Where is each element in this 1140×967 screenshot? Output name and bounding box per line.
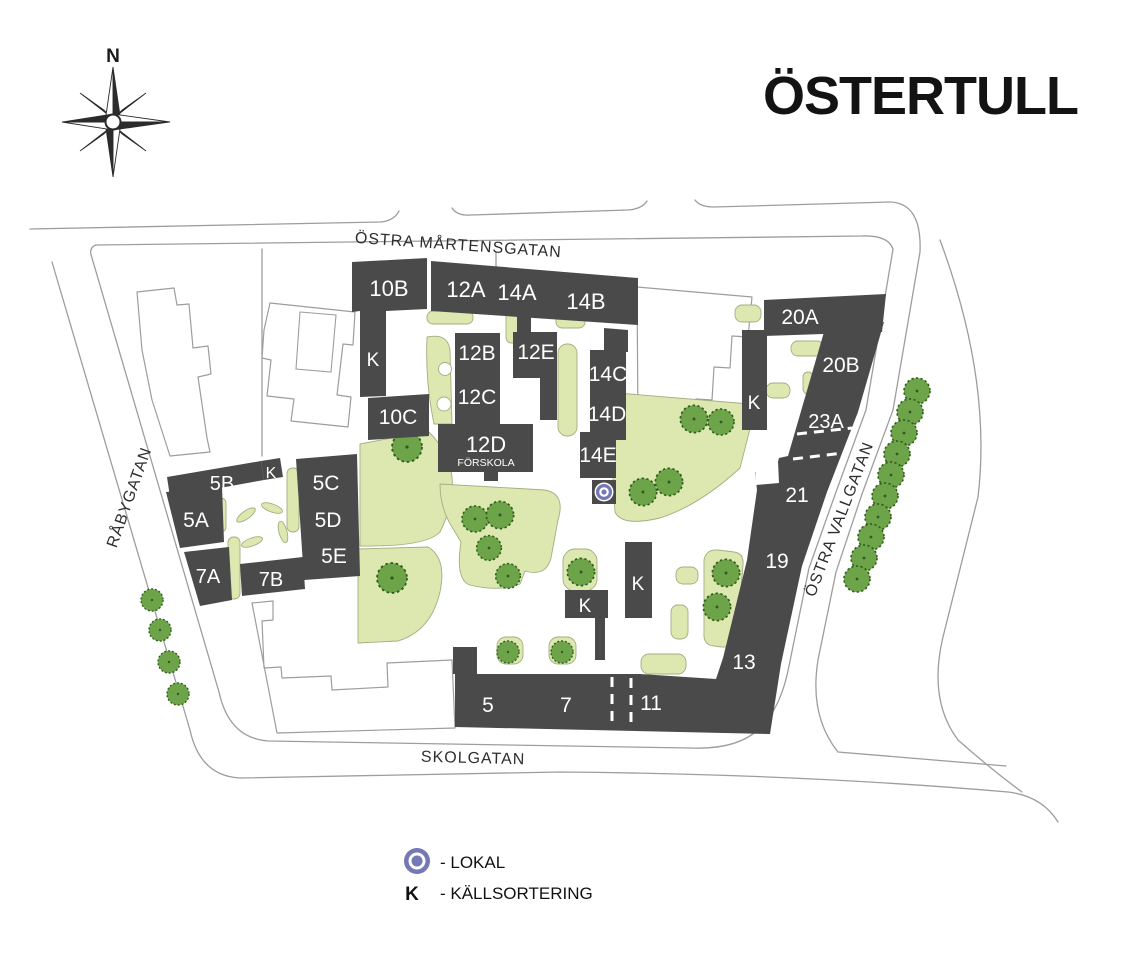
green-area [427,336,452,424]
lokal-marker [592,480,616,504]
lokal-legend-icon [404,848,430,874]
building-label-12e: 12E [517,341,554,364]
street-label-skolgatan: SKOLGATAN [421,749,526,769]
building-label-12c: 12C [458,386,497,409]
tree-icon [844,566,870,592]
building-label-10b: 10B [369,276,408,301]
building-label-5: 5 [482,694,494,717]
building-label-13: 13 [732,651,755,674]
building-label-20a: 20A [781,306,818,329]
green-area-hole [439,363,452,376]
building-label-k-20: K [748,393,761,414]
building-label-5a: 5A [183,509,209,532]
building-label-23a: 23A [808,411,844,433]
tree-icon [567,558,594,585]
building-label-12d-forskola: FÖRSKOLA [457,457,514,469]
building-connector-shape [517,308,531,334]
tree-icon [680,405,707,432]
building-label-12a: 12A [446,277,485,302]
building-label-7: 7 [560,694,572,717]
tree-icon [141,589,163,611]
green-area-petal [240,534,263,549]
building-label-k-small: K [579,596,592,617]
building-label-7b: 7B [259,569,283,591]
building-label-5d: 5D [315,509,342,532]
tree-icon [167,683,189,705]
building-label-14d: 14D [588,403,627,426]
street-label-ostra-martensgatan: ÖSTRA MÅRTENSGATAN [354,228,562,261]
building-label-5e: 5E [321,545,347,568]
tree-icon [655,468,682,495]
legend-kallsortering-symbol: K [405,884,419,905]
green-area-petal [235,505,258,524]
road-line-top-north-edge [30,211,399,229]
tree-icon [629,478,656,505]
green-area [358,547,442,643]
lokal-icon [595,483,614,502]
green-area-hole [437,397,451,411]
building-label-14e: 14E [579,444,616,467]
tree-icon [703,593,730,620]
tree-icon [496,564,521,589]
tree-icon [486,501,513,528]
neighbor-building-outline [137,288,211,456]
building-label-k-10b: K [367,350,380,371]
tree-icon [712,559,739,586]
compass-rose-icon: N [62,46,170,177]
green-area [287,468,299,532]
compass-north-label: N [106,46,120,67]
building-notch [755,461,779,485]
building-stub-shape [453,647,477,674]
building-label-12d: 12D [466,432,506,457]
green-area [671,605,688,639]
legend: - LOKAL K - KÄLLSORTERING [404,848,593,905]
building-label-19: 19 [765,550,788,573]
legend-kallsortering-label: - KÄLLSORTERING [440,884,593,903]
neighbor-building-outline [262,303,355,427]
building-label-5c: 5C [313,472,340,495]
road-line-top-north-edge [452,201,647,215]
tree-icon [708,409,734,435]
green-area [735,305,761,322]
building-label-k-tall: K [632,574,645,595]
site-plan-map: 10B K 10C 12A 14A 14B 12B 12C 12E 12D FÖ… [0,0,1140,967]
building-label-14b: 14B [566,289,605,314]
tree-icon [149,619,171,641]
building-label-k-5b: K [266,465,277,482]
building-label-12b: 12B [458,342,495,365]
road-line-outer-east [938,240,1022,792]
green-area [641,654,686,674]
page-title: ÖSTERTULL [763,66,1078,126]
green-area [766,383,790,398]
tree-icon [497,641,519,663]
building-label-14c: 14C [589,363,628,386]
building-k20-shape [742,330,767,430]
building-label-10c: 10C [379,406,418,429]
building-label-20b: 20B [822,354,859,377]
building-label-21: 21 [785,484,808,507]
tree-icon [462,506,488,532]
green-area [558,344,577,436]
building-label-7a: 7A [196,566,221,588]
tree-icon [377,563,407,593]
green-area [676,567,698,584]
tree-icon [158,651,180,673]
site-plan-page: 10B K 10C 12A 14A 14B 12B 12C 12E 12D FÖ… [0,0,1140,967]
legend-lokal-label: - LOKAL [440,853,505,872]
tree-icon [477,536,502,561]
building-label-11: 11 [640,692,662,715]
building-label-5b: 5B [210,473,234,495]
green-area-petal [260,500,283,515]
tree-icon [551,641,573,663]
building-label-14a: 14A [497,280,536,305]
